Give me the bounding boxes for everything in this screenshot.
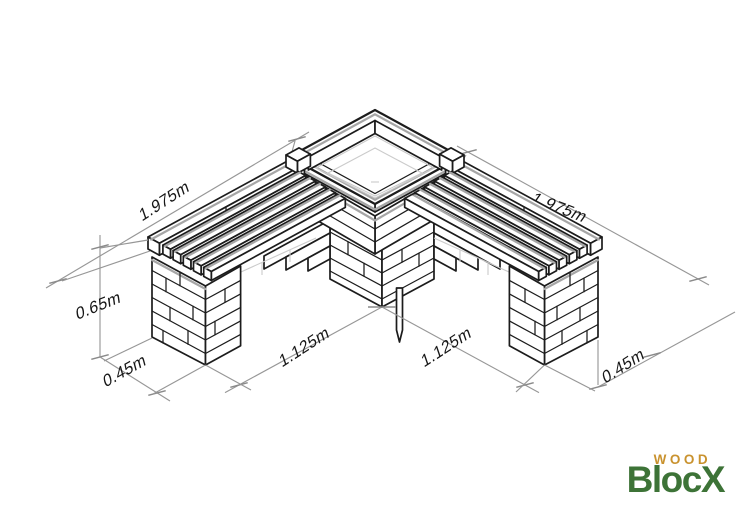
logo-blocx-text: BlocX <box>627 465 724 495</box>
dimension-label-span-left: 1.125m <box>277 322 331 372</box>
drawing-canvas: 1.975m 1.975m <box>0 0 738 521</box>
isometric-line-drawing: 1.975m 1.975m <box>0 0 738 521</box>
dimension-label-depth-left: 0.45m <box>101 350 148 392</box>
dimension-label-span-right: 1.125m <box>419 322 473 372</box>
dimension-height: 0.65m <box>75 235 148 359</box>
woodblocx-logo: WOOD BlocX <box>627 454 724 495</box>
dimension-label-depth-right: 0.45m <box>600 344 646 388</box>
dimension-label-height: 0.65m <box>75 287 122 324</box>
